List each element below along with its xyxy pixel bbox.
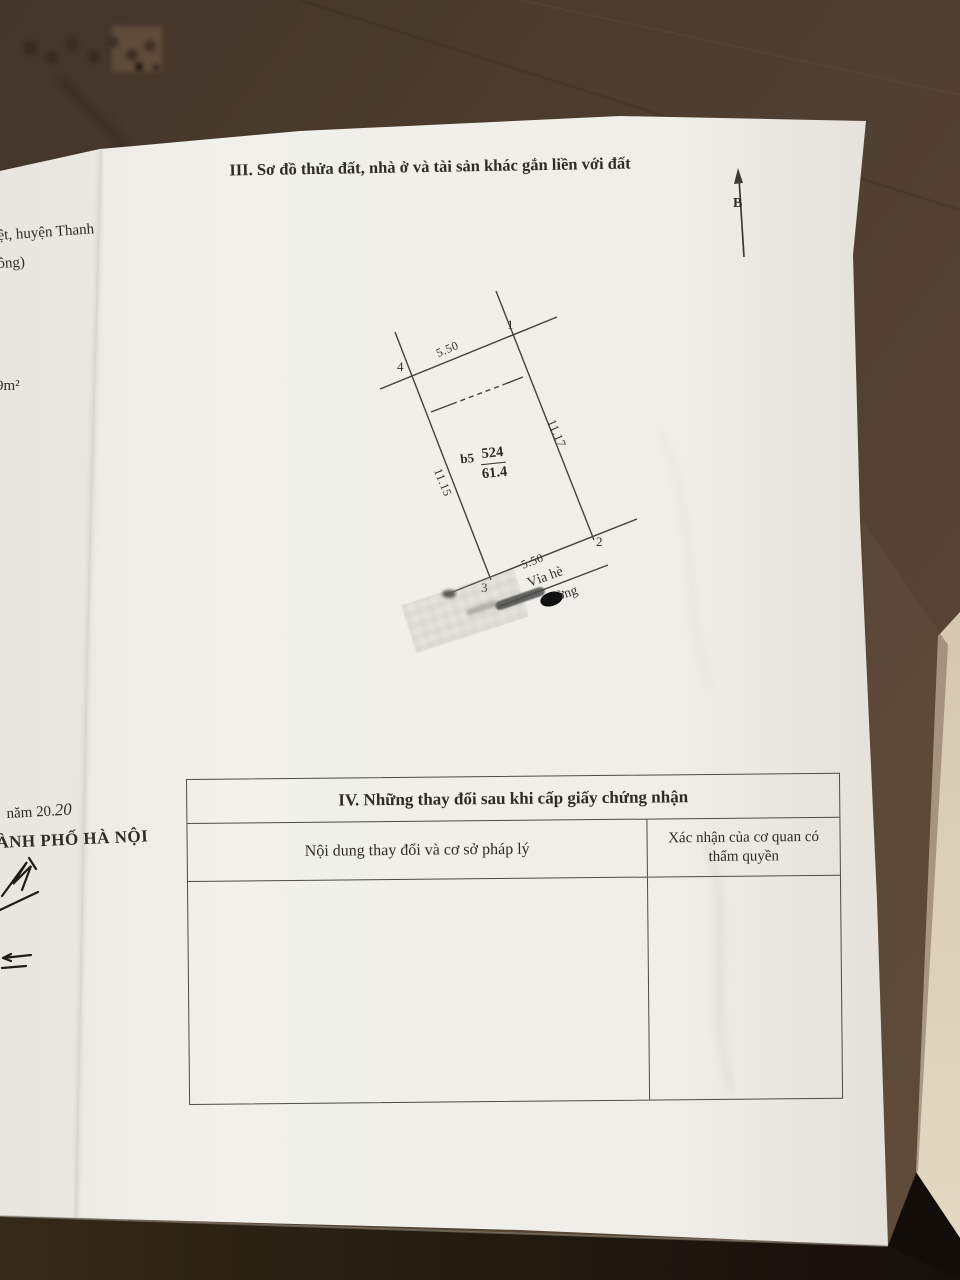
setback-line-dashed [452,384,505,404]
fragment-year: năm 20.20 [6,800,72,823]
fragment-year-handwritten: 20 [54,800,72,820]
north-arrow-icon [734,168,744,257]
fragment-area: 9m² [0,378,20,395]
col1-header: Nội dung thay đổi và cơ sở pháp lý [187,820,646,881]
parcel-label: b5 524 61.4 [459,444,508,486]
parcel-area: 61.4 [481,463,508,484]
photo-of-land-certificate: III. Sơ đồ thửa đất, nhà ở và tài sản kh… [0,0,960,1280]
blurred-dot [442,590,456,598]
col1-empty-cell [188,878,649,1104]
corner-point-2: 2 [596,534,603,550]
corner-point-4: 4 [397,359,404,375]
section4-title: IV. Những thay đổi sau khi cấp giấy chứn… [187,774,839,824]
setback-line [431,404,452,412]
signature-scribble [0,850,120,990]
col2-empty-cell [647,876,842,1100]
corner-point-1: 1 [507,317,514,333]
setback-line-end [505,377,523,384]
north-label: B [733,196,742,212]
col2-header: Xác nhận của cơ quan có thẩm quyền [646,818,840,877]
fragment-paren: ông) [0,255,25,273]
section4-table: IV. Những thay đổi sau khi cấp giấy chứn… [186,773,843,1105]
fragment-year-printed: năm 20. [6,803,55,822]
parcel-sheet: b5 [460,450,477,485]
